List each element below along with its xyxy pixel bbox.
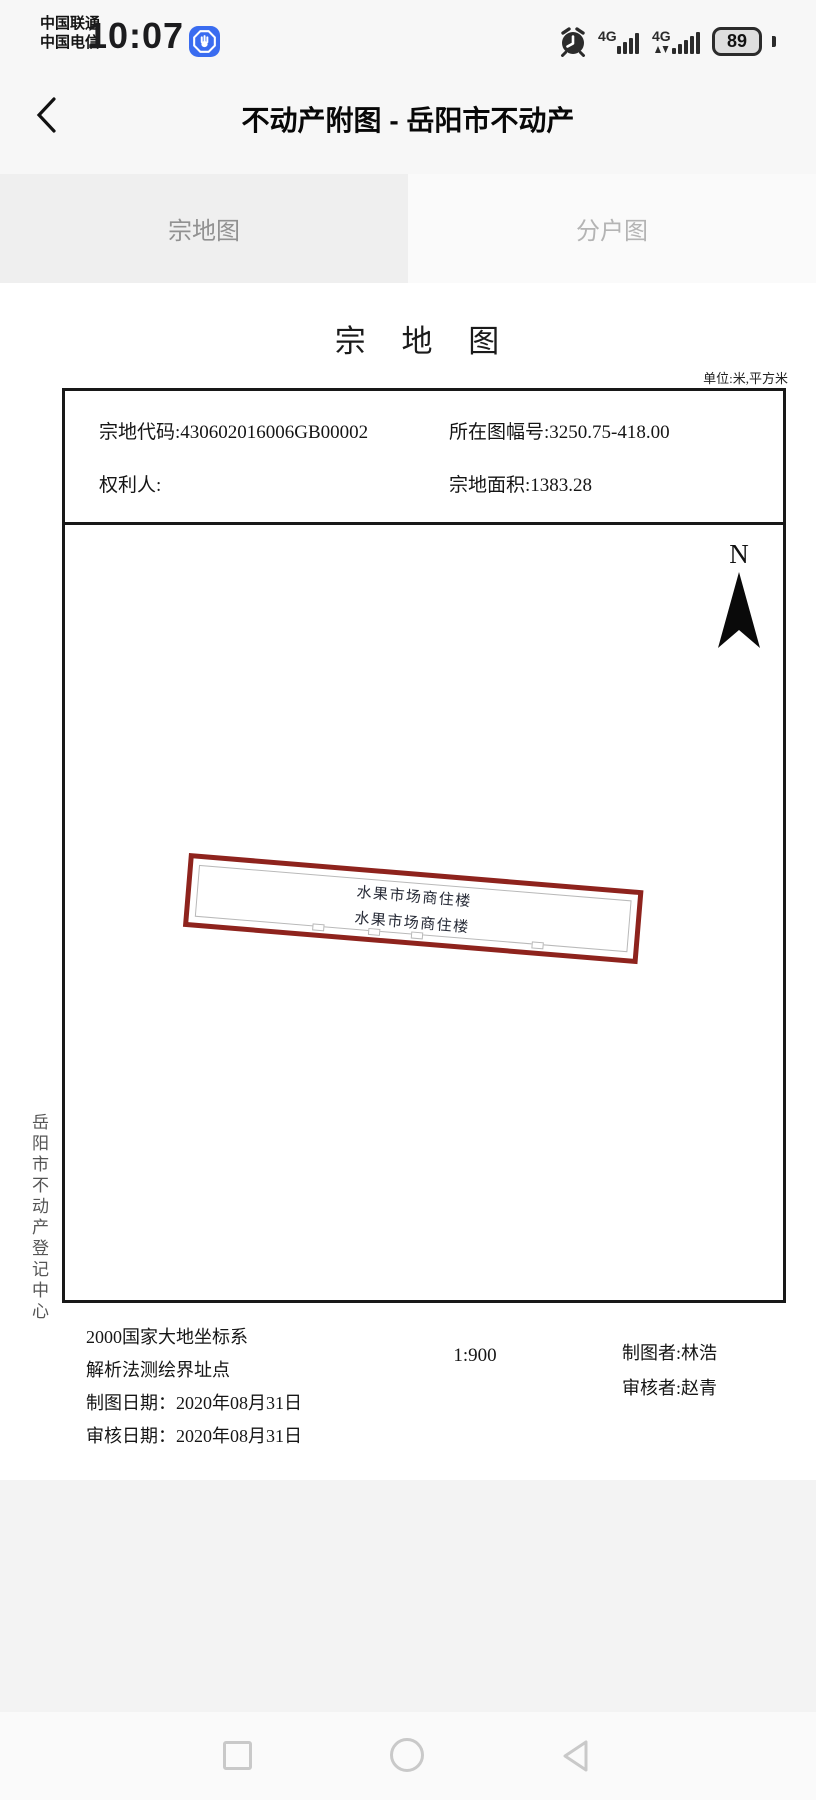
- coord-system: 2000国家大地坐标系: [86, 1321, 302, 1354]
- svg-text:4G: 4G: [598, 28, 617, 44]
- building-label-1: 水果市场商住楼: [356, 880, 473, 910]
- parcel-code: 宗地代码:430602016006GB00002: [99, 417, 368, 444]
- footer-right-column: 制图者:林浩 审核者:赵青: [622, 1336, 717, 1406]
- draw-date: 制图日期：2020年08月31日: [86, 1387, 302, 1420]
- right-holder: 权利人:: [99, 470, 161, 497]
- building-notch: [411, 931, 424, 939]
- building-notch: [531, 941, 544, 949]
- parcel-map-document: 宗 地 图 单位:米,平方米 宗地代码:430602016006GB00002 …: [0, 283, 816, 1480]
- 4g-signal-icon: 4G: [598, 26, 642, 56]
- building-notch: [312, 923, 325, 931]
- battery-icon: 89: [712, 27, 762, 56]
- svg-text:4G: 4G: [652, 28, 671, 44]
- back-triangle-icon[interactable]: [558, 1739, 596, 1773]
- unit-note: 单位:米,平方米: [703, 368, 788, 387]
- parcel-info-table: 宗地代码:430602016006GB00002 所在图幅号:3250.75-4…: [65, 391, 783, 525]
- status-bar-and-header: 中国联通 中国电信 10:07 4G: [0, 0, 816, 174]
- building-notch: [368, 928, 381, 936]
- home-circle-icon[interactable]: [390, 1738, 424, 1772]
- review-date: 审核日期：2020年08月31日: [86, 1420, 302, 1453]
- battery-percent: 89: [727, 31, 747, 52]
- document-title: 宗 地 图: [62, 316, 786, 361]
- android-nav-bar: [0, 1712, 816, 1800]
- hand-permission-icon: [189, 26, 220, 57]
- building-outline: 水果市场商住楼 水果市场商住楼: [195, 865, 632, 952]
- page-title: 不动产附图 - 岳阳市不动产: [0, 99, 816, 139]
- map-frame: 宗地代码:430602016006GB00002 所在图幅号:3250.75-4…: [62, 388, 786, 1303]
- reviewer: 审核者:赵青: [622, 1371, 717, 1406]
- alarm-clock-icon: [558, 26, 588, 57]
- survey-method: 解析法测绘界址点: [86, 1354, 302, 1387]
- 4g-signal-arrows-icon: 4G: [652, 26, 702, 56]
- parcel-boundary: 水果市场商住楼 水果市场商住楼: [183, 853, 644, 964]
- recents-square-icon[interactable]: [223, 1741, 252, 1770]
- tab-bar: 宗地图 分户图: [0, 174, 816, 283]
- north-indicator: N: [707, 539, 771, 650]
- map-canvas: N 水果市场商住楼 水果市场商住楼: [65, 525, 783, 1297]
- phone-screen: 中国联通 中国电信 10:07 4G: [0, 0, 816, 1800]
- registration-center-label: 岳阳市不动产登记中心: [26, 1113, 51, 1323]
- tab-fenhutu[interactable]: 分户图: [408, 174, 816, 283]
- status-icons-cluster: 4G 4G 89: [558, 25, 776, 57]
- battery-nub: [772, 36, 776, 47]
- parcel-area: 宗地面积:1383.28: [449, 470, 592, 497]
- content-background-gap: [0, 1480, 816, 1712]
- north-label: N: [707, 539, 771, 570]
- footer-left-column: 2000国家大地坐标系 解析法测绘界址点 制图日期：2020年08月31日 审核…: [86, 1321, 302, 1453]
- map-scale: 1:900: [415, 1345, 535, 1367]
- status-time: 10:07: [87, 15, 184, 57]
- drafter: 制图者:林浩: [622, 1336, 717, 1371]
- north-arrow-icon: [716, 572, 762, 650]
- tab-zongditu[interactable]: 宗地图: [0, 174, 408, 283]
- map-sheet-no: 所在图幅号:3250.75-418.00: [449, 417, 670, 444]
